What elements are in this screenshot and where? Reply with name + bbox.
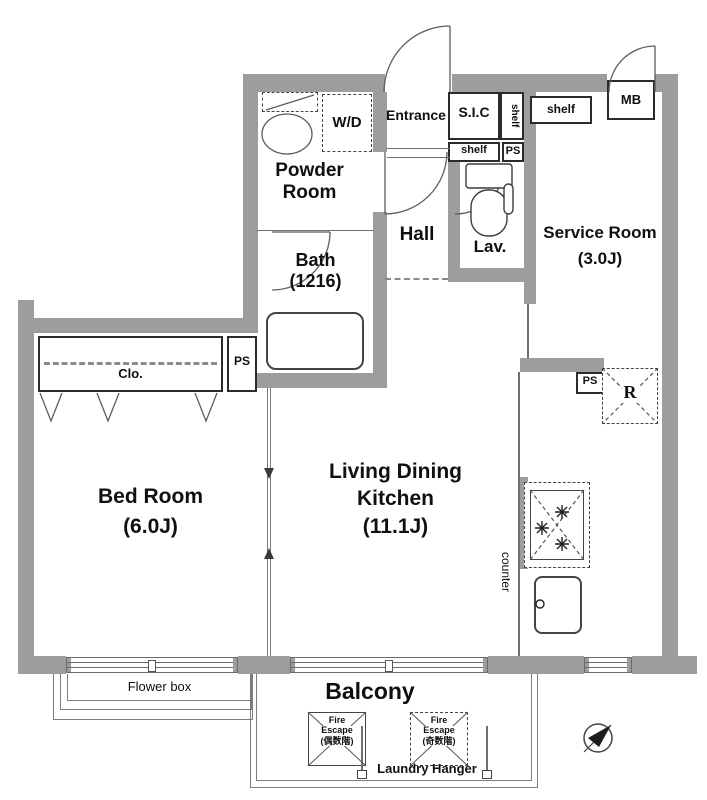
wall-lav-south bbox=[448, 268, 536, 282]
powder-room-door-arc bbox=[385, 152, 447, 214]
wall-right bbox=[662, 74, 678, 674]
compass-icon bbox=[584, 724, 612, 752]
refrigerator-label: R bbox=[602, 382, 658, 403]
shelf-under-sic-label: shelf bbox=[448, 144, 500, 157]
ps-under-sic-label: PS bbox=[502, 145, 524, 158]
fire-escape-even-label: FireEscape(偶数階) bbox=[308, 715, 366, 746]
sic-shelf-label: shelf bbox=[504, 94, 520, 138]
lav-door-arc bbox=[455, 164, 505, 214]
kitchen-window bbox=[584, 657, 632, 673]
closet-door-v-marks bbox=[40, 393, 217, 421]
fire-escape-odd-label: FireEscape(奇数階) bbox=[410, 715, 468, 746]
bedroom-ldk-partition bbox=[267, 388, 271, 656]
ps-kitchen-label: PS bbox=[576, 375, 604, 388]
mirror-cabinet bbox=[262, 92, 318, 112]
mb-label: MB bbox=[607, 92, 655, 107]
window-latch-icon bbox=[148, 660, 156, 672]
partition-arrow-up bbox=[264, 548, 274, 559]
hall-ldk-opening bbox=[385, 278, 448, 280]
stove-inner bbox=[530, 490, 584, 560]
bath-label: Bath(1216) bbox=[268, 250, 363, 292]
ps-near-closet-label: PS bbox=[227, 354, 257, 368]
toilet-bowl bbox=[471, 190, 507, 236]
bedroom-label: Bed Room(6.0J) bbox=[58, 482, 243, 543]
wall-bath-south bbox=[257, 373, 387, 388]
wall-bottom-3 bbox=[488, 656, 584, 674]
entrance-step-line-1 bbox=[387, 148, 450, 149]
washer-dryer-label: W/D bbox=[322, 114, 372, 132]
partition-arrow-down bbox=[264, 468, 274, 479]
counter-label: counter bbox=[497, 540, 513, 604]
flower-box-label: Flower box bbox=[67, 679, 252, 694]
hall-label: Hall bbox=[387, 224, 447, 246]
wall-left bbox=[18, 300, 34, 674]
service-shelf-label: shelf bbox=[530, 102, 592, 116]
toilet-handle bbox=[504, 184, 513, 214]
wall-top-left bbox=[243, 74, 385, 92]
bedroom-window bbox=[66, 657, 238, 673]
wall-hall-lav bbox=[448, 160, 460, 282]
floor-plan: Entrance W/D S.I.C shelf shelf PS shelf … bbox=[0, 0, 707, 800]
wall-bottom-2 bbox=[238, 656, 290, 674]
washbasin bbox=[262, 114, 312, 154]
entrance-door-arc bbox=[384, 26, 450, 92]
ldk-label: Living DiningKitchen(11.1J) bbox=[298, 458, 493, 540]
counter-edge-line bbox=[518, 372, 520, 656]
bath-entry-line bbox=[257, 230, 373, 231]
balcony-label: Balcony bbox=[265, 678, 475, 705]
living-balcony-window bbox=[290, 657, 488, 673]
kitchen-sink bbox=[534, 576, 582, 634]
service-room-door bbox=[527, 304, 529, 358]
service-room-label: Service Room(3.0J) bbox=[530, 220, 670, 273]
entrance-step-line-2 bbox=[387, 157, 450, 158]
bathtub bbox=[266, 312, 364, 370]
wall-bedroom-top bbox=[18, 318, 258, 333]
laundry-hanger-label: Laundry Hanger bbox=[368, 761, 486, 776]
lav-label: Lav. bbox=[455, 237, 525, 257]
wall-hall-bath bbox=[373, 212, 387, 388]
closet-label: Clo. bbox=[38, 366, 223, 381]
hanger-pipe bbox=[44, 362, 217, 365]
powder-room-label: PowderRoom bbox=[252, 160, 367, 205]
window-latch-icon bbox=[385, 660, 393, 672]
closet bbox=[38, 336, 223, 392]
laundry-post-left-base bbox=[357, 770, 367, 779]
sic-label: S.I.C bbox=[448, 104, 500, 121]
wall-top-mid bbox=[452, 74, 607, 92]
wall-bottom-4 bbox=[632, 656, 697, 674]
toilet-tank bbox=[466, 164, 512, 188]
entrance-label: Entrance bbox=[376, 107, 456, 124]
wall-kitchen-top bbox=[520, 358, 604, 372]
